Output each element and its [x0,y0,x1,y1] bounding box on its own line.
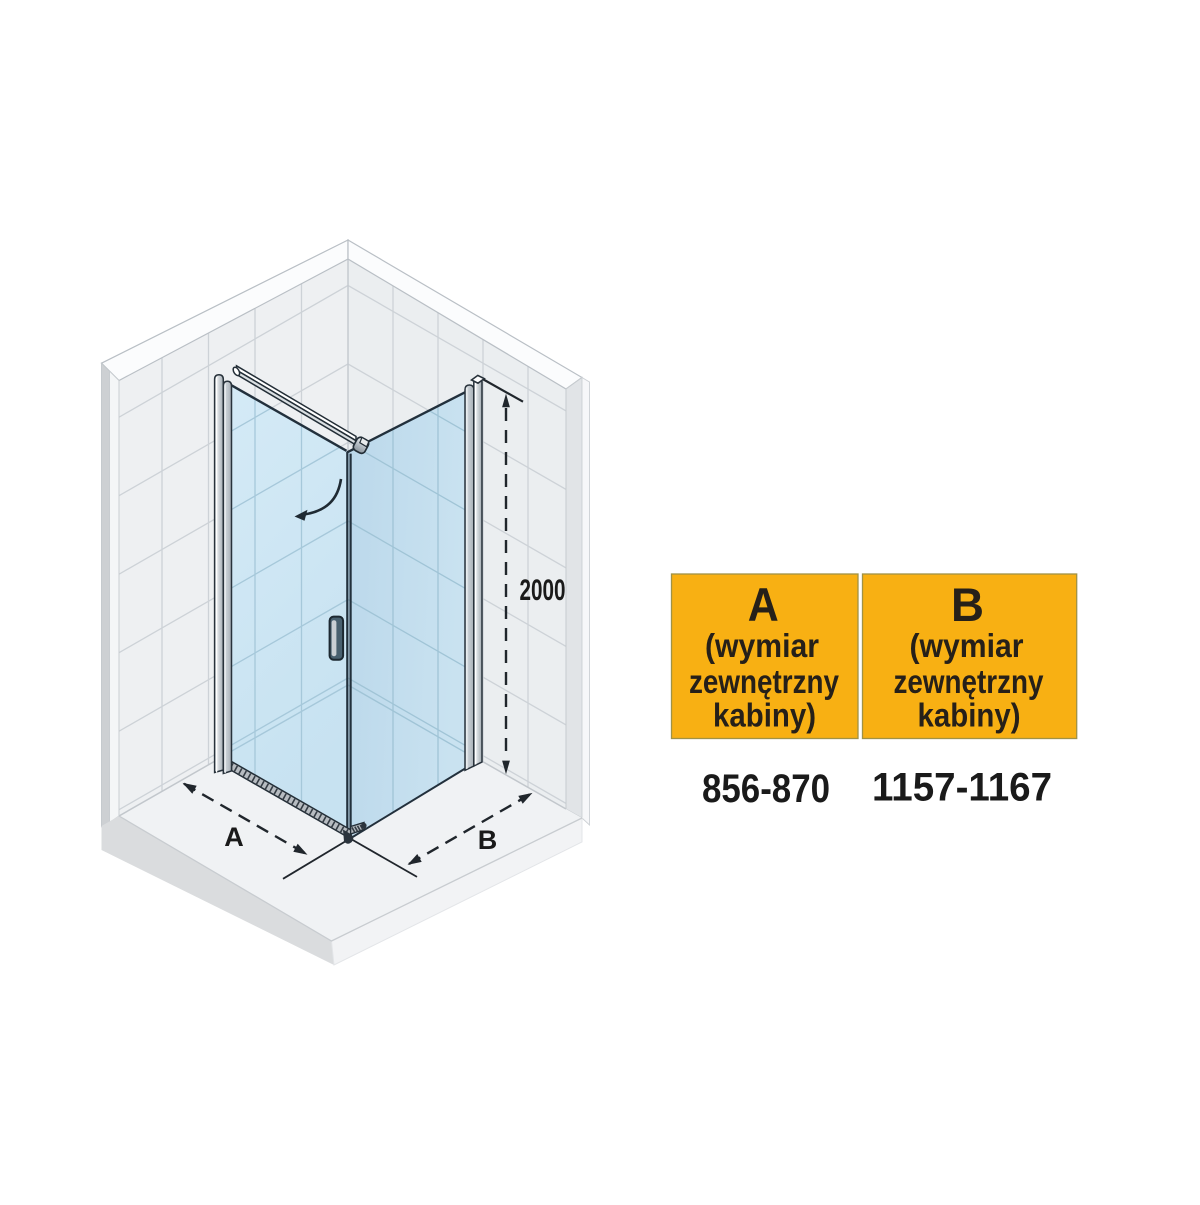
svg-text:1157-1167: 1157-1167 [872,766,1052,810]
svg-text:zewnętrzny: zewnętrzny [894,664,1044,701]
svg-text:A: A [224,822,244,852]
svg-text:B: B [951,578,984,631]
svg-text:zewnętrzny: zewnętrzny [689,664,839,701]
svg-text:B: B [478,825,498,855]
svg-text:(wymiar: (wymiar [910,628,1024,665]
svg-text:A: A [748,578,779,631]
svg-text:(wymiar: (wymiar [705,628,819,665]
svg-text:kabiny): kabiny) [918,698,1021,735]
svg-text:2000: 2000 [520,574,566,607]
svg-text:kabiny): kabiny) [713,698,816,735]
svg-text:856-870: 856-870 [702,767,830,811]
